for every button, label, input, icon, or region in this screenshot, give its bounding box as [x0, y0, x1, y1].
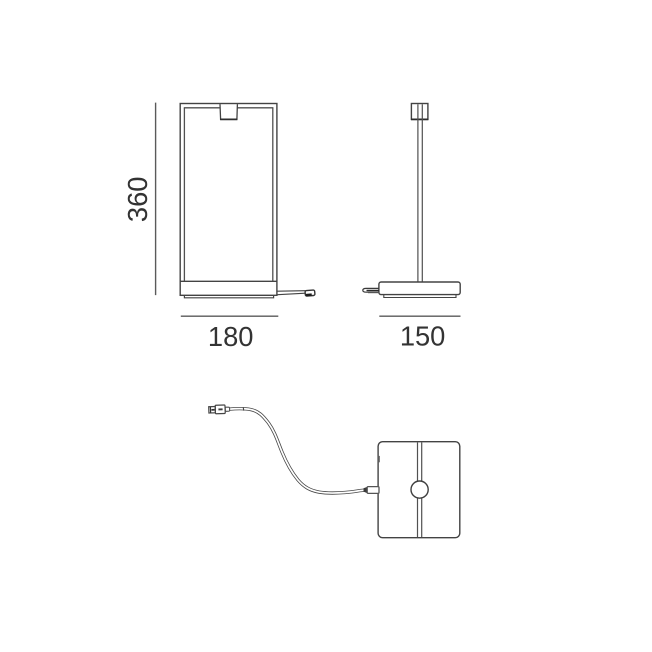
- svg-text:180: 180: [208, 321, 254, 352]
- svg-text:360: 360: [122, 177, 153, 223]
- svg-text:150: 150: [400, 321, 446, 352]
